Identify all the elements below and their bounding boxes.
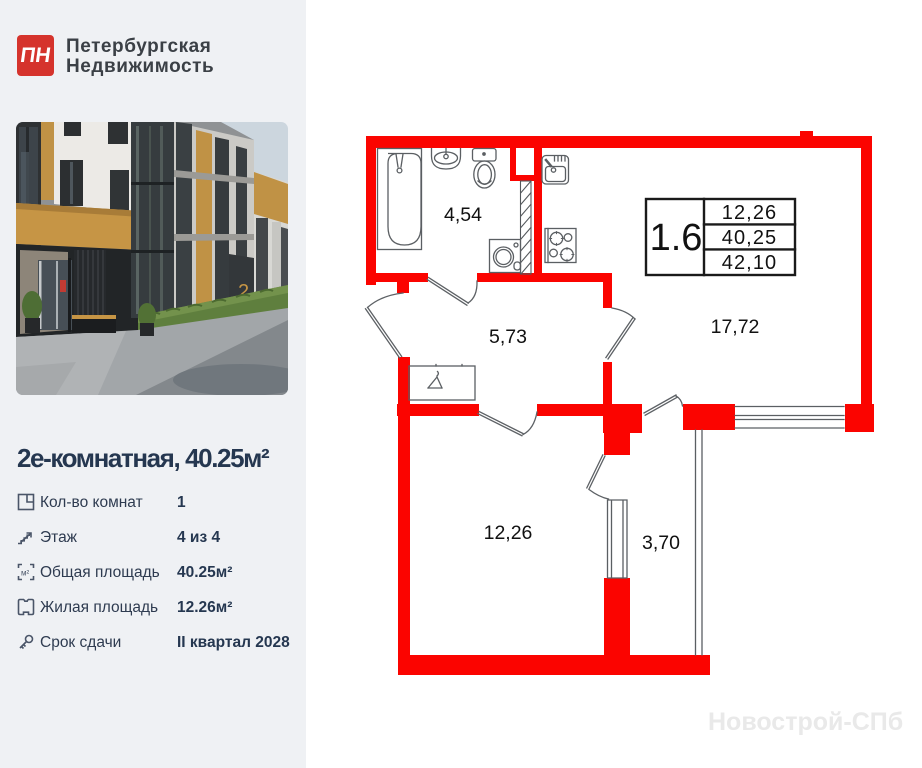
- svg-text:1.6: 1.6: [650, 217, 703, 259]
- svg-text:40,25: 40,25: [722, 227, 778, 249]
- svg-text:3,70: 3,70: [642, 532, 680, 554]
- svg-text:12,26: 12,26: [484, 522, 533, 544]
- svg-text:17,72: 17,72: [711, 316, 760, 338]
- svg-text:42,10: 42,10: [722, 252, 778, 274]
- svg-text:4,54: 4,54: [444, 204, 482, 226]
- svg-text:12,26: 12,26: [722, 202, 778, 224]
- svg-text:5,73: 5,73: [489, 326, 527, 348]
